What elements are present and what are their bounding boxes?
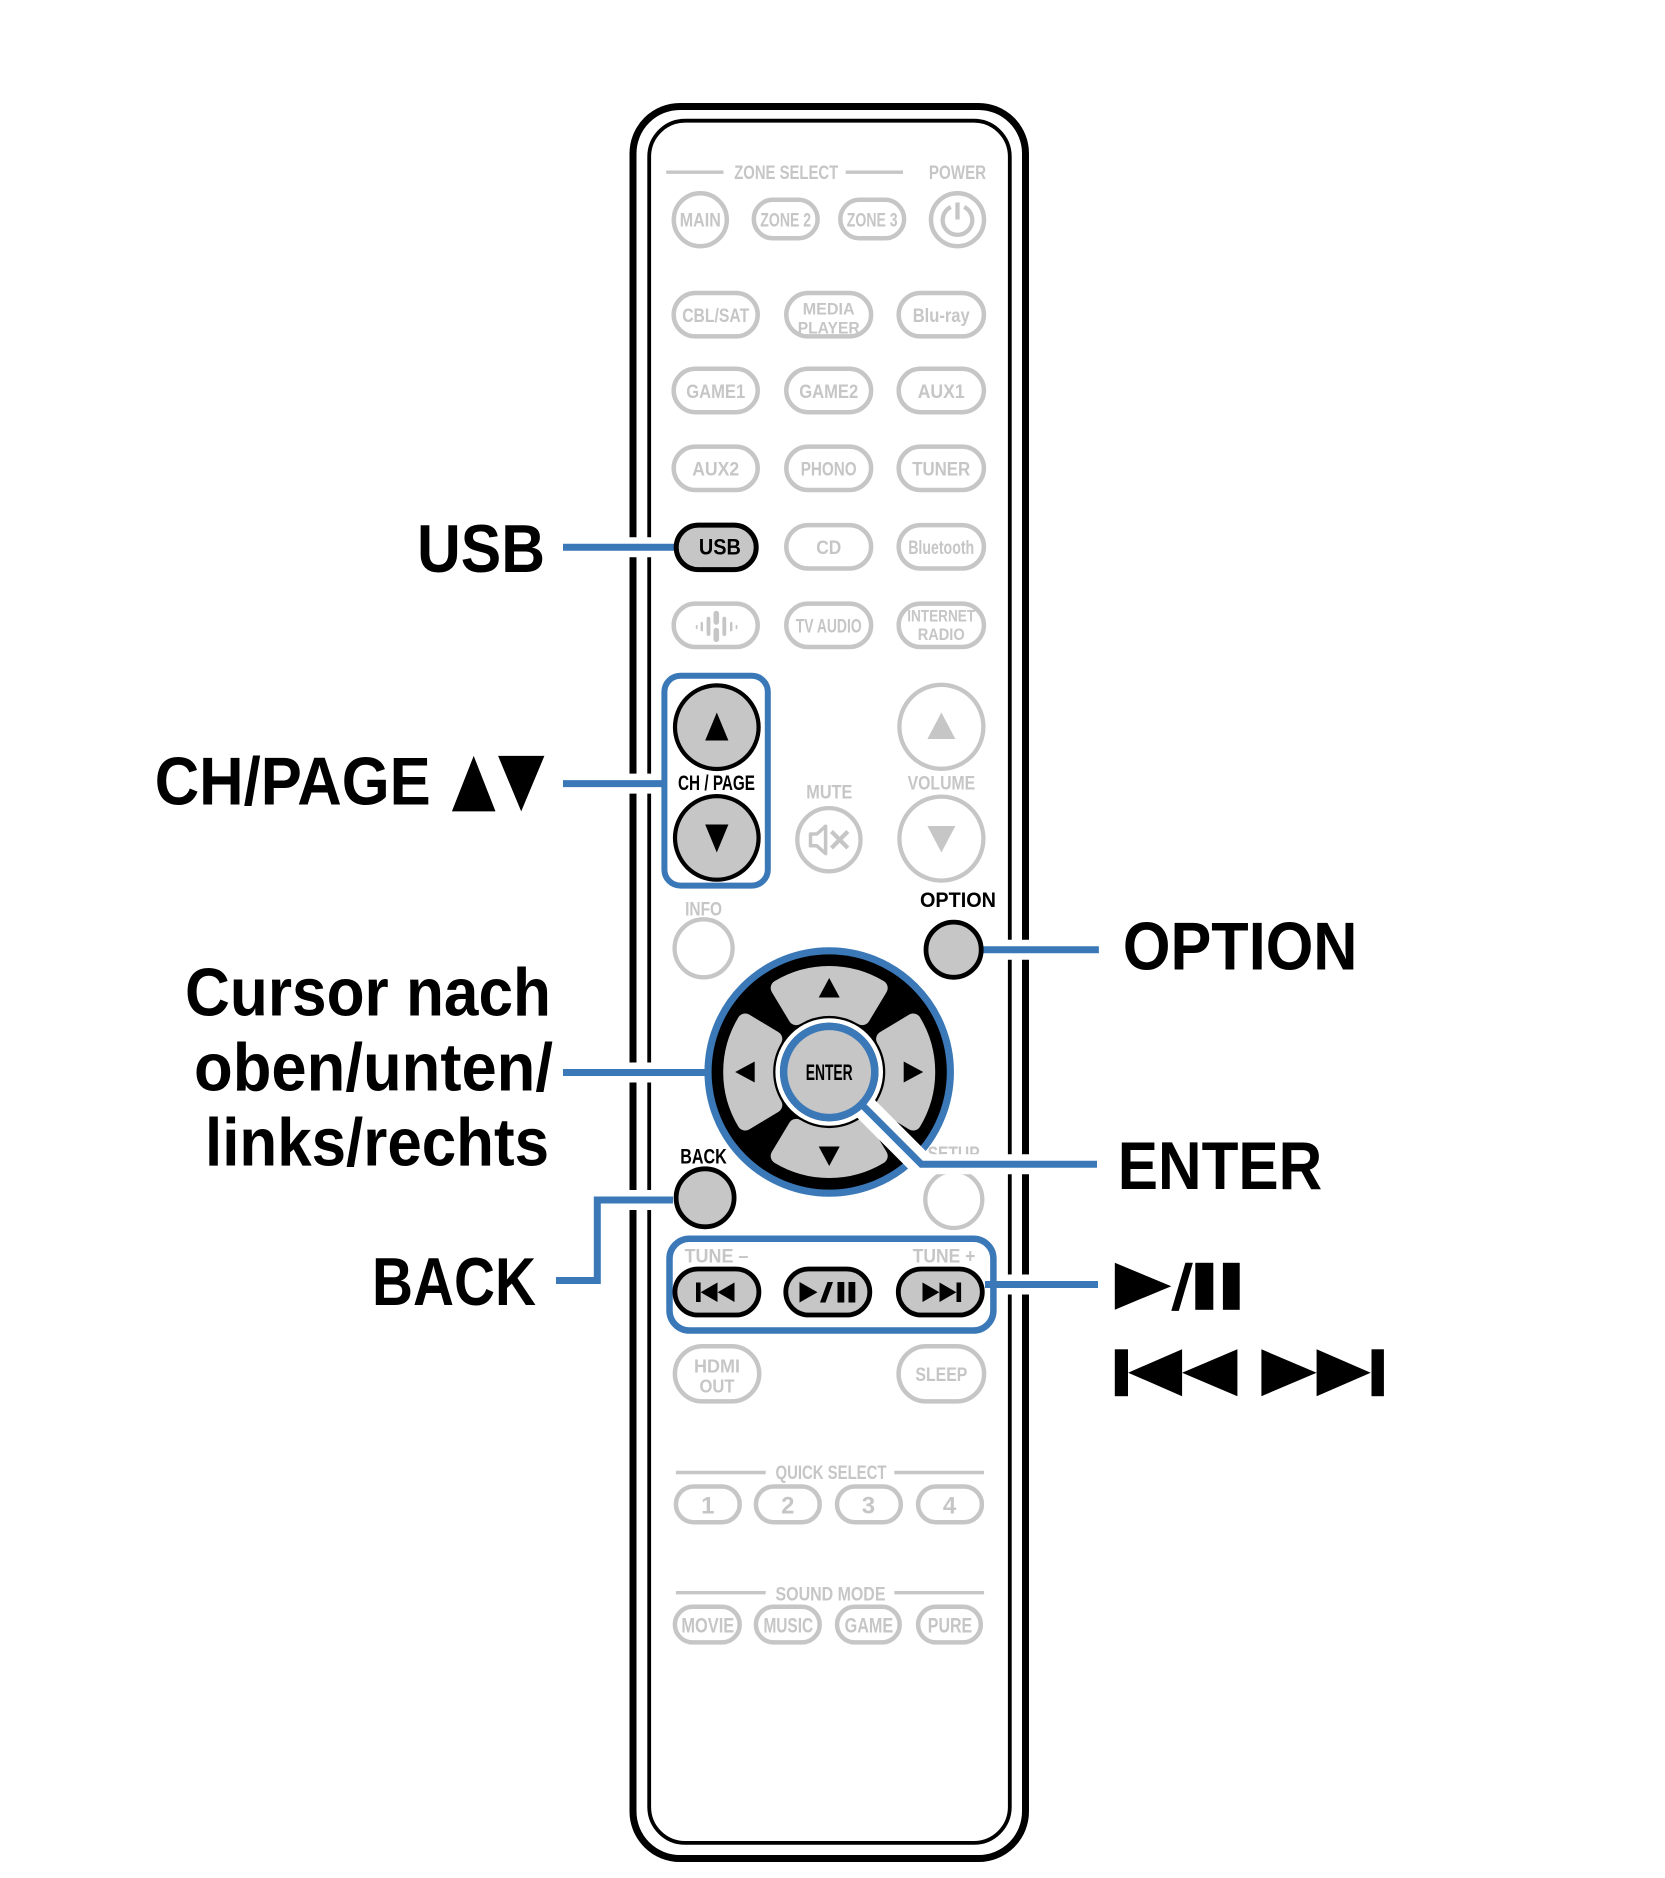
svg-text:TV AUDIO: TV AUDIO <box>796 616 862 638</box>
svg-text:USB: USB <box>699 535 741 560</box>
svg-text:CH/PAGE: CH/PAGE <box>155 744 431 820</box>
svg-text:HDMI: HDMI <box>694 1356 740 1377</box>
svg-text:RADIO: RADIO <box>918 625 965 644</box>
svg-text:CD: CD <box>816 537 841 559</box>
svg-text:1: 1 <box>701 1493 714 1520</box>
svg-text:MUTE: MUTE <box>806 782 852 804</box>
svg-text:POWER: POWER <box>929 162 986 184</box>
svg-text:GAME: GAME <box>845 1615 894 1638</box>
svg-text:TUNE –: TUNE – <box>685 1245 749 1267</box>
svg-text:OPTION: OPTION <box>920 889 996 912</box>
svg-text:links/rechts: links/rechts <box>205 1105 549 1181</box>
svg-text:Bluetooth: Bluetooth <box>908 537 974 559</box>
svg-text:4: 4 <box>943 1493 957 1520</box>
svg-text:PLAYER: PLAYER <box>798 319 860 338</box>
svg-text:CBL/SAT: CBL/SAT <box>682 305 749 327</box>
svg-text:GAME2: GAME2 <box>799 381 858 403</box>
svg-text:PURE: PURE <box>928 1615 972 1638</box>
svg-text:INTERNET: INTERNET <box>907 606 975 625</box>
svg-text:ZONE 3: ZONE 3 <box>847 210 898 232</box>
svg-text:MEDIA: MEDIA <box>803 300 855 319</box>
svg-text:TUNER: TUNER <box>912 459 970 481</box>
svg-text:ZONE 2: ZONE 2 <box>760 210 811 232</box>
svg-text:Blu-ray: Blu-ray <box>913 305 970 327</box>
svg-text:SOUND MODE: SOUND MODE <box>776 1583 886 1605</box>
svg-text:ENTER: ENTER <box>806 1060 853 1085</box>
svg-text:AUX2: AUX2 <box>692 459 739 481</box>
svg-text:SLEEP: SLEEP <box>915 1364 967 1386</box>
svg-text:2: 2 <box>781 1493 794 1520</box>
svg-text:Cursor nach: Cursor nach <box>185 955 551 1031</box>
svg-text:3: 3 <box>862 1493 875 1520</box>
svg-text:OPTION: OPTION <box>1123 908 1358 984</box>
svg-text:oben/unten/: oben/unten/ <box>194 1030 553 1106</box>
svg-text:CH / PAGE: CH / PAGE <box>678 772 755 795</box>
svg-text:ENTER: ENTER <box>1118 1128 1322 1204</box>
svg-text:TUNE +: TUNE + <box>913 1245 976 1267</box>
svg-text:VOLUME: VOLUME <box>908 772 976 794</box>
svg-text:QUICK SELECT: QUICK SELECT <box>776 1462 887 1484</box>
svg-text:ZONE SELECT: ZONE SELECT <box>734 162 838 184</box>
svg-text:BACK: BACK <box>372 1244 536 1320</box>
svg-text:MAIN: MAIN <box>680 210 721 232</box>
svg-text:GAME1: GAME1 <box>686 381 745 403</box>
svg-text:USB: USB <box>417 511 545 587</box>
svg-text:BACK: BACK <box>680 1146 727 1169</box>
svg-text:MUSIC: MUSIC <box>763 1615 813 1638</box>
svg-text:MOVIE: MOVIE <box>681 1615 734 1638</box>
svg-text:AUX1: AUX1 <box>918 381 965 403</box>
svg-text:OUT: OUT <box>700 1375 736 1396</box>
svg-text:PHONO: PHONO <box>801 459 857 481</box>
